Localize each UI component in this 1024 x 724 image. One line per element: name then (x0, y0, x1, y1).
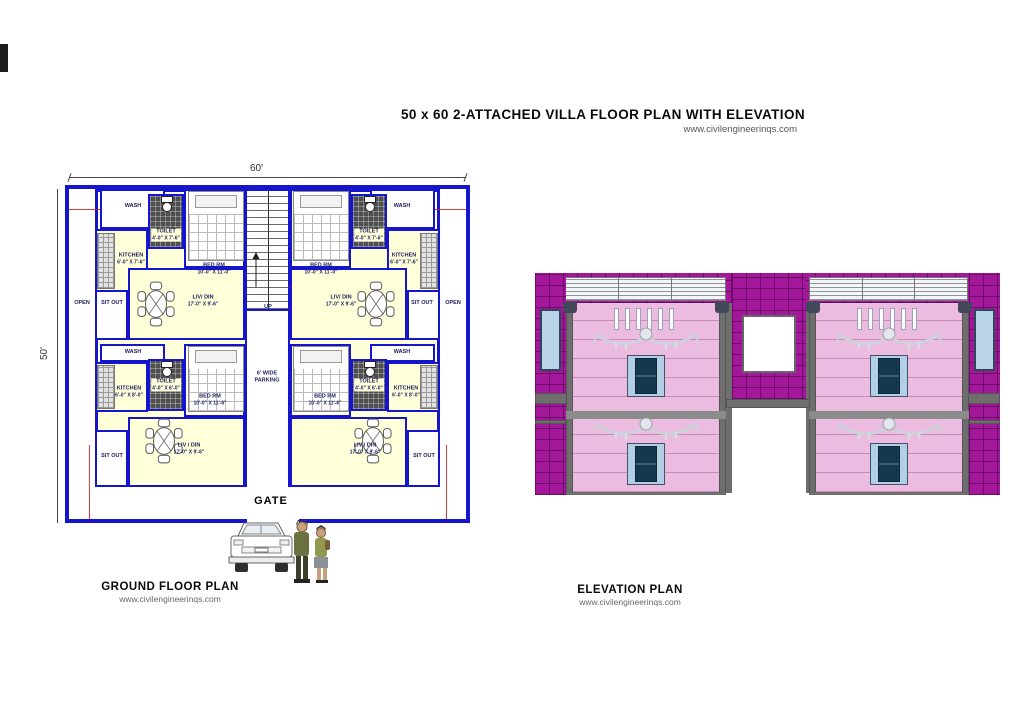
red-property-line (446, 445, 447, 519)
kitchen-counter-upper-left (97, 233, 115, 289)
drawing-sheet: 50 x 60 2-ATTACHED VILLA FLOOR PLAN WITH… (0, 0, 1024, 724)
website-text: www.civilengineerinqs.com (545, 597, 715, 607)
room-label-living: LIV/ DIN17'-0" X 9'-6" (188, 295, 218, 308)
height-dimension: 50' (39, 347, 50, 360)
swag-ornament-icon (588, 327, 704, 355)
bed-icon (293, 191, 349, 261)
swag-ornament-icon (588, 417, 704, 445)
brick-tower-center (732, 273, 806, 399)
room-label-bed: BED RM10'-0" X 11'-0" (305, 263, 338, 276)
car-icon (228, 516, 338, 586)
plan-caption-block: GROUND FLOOR PLAN www.civilengineerinqs.… (85, 581, 255, 604)
brick-column-left (535, 273, 566, 495)
red-property-line (89, 445, 90, 519)
room-label-open: OPEN (445, 300, 461, 307)
parking-driveway (245, 311, 290, 487)
toilet-icon (364, 361, 374, 376)
window (870, 355, 908, 397)
parapet-louver-left (565, 277, 726, 301)
room-label-kitchen: KITCHEN6'-0" X 8'-0" (392, 386, 420, 399)
room-label-bed: BED RM10'-0" X 11'-6" (194, 394, 227, 407)
dining-table-icon (145, 418, 183, 464)
toilet-icon (364, 196, 374, 211)
elevation-caption-block: ELEVATION PLAN www.civilengineerinqs.com (545, 584, 715, 607)
dimension-line-top (69, 177, 466, 178)
plan-caption: GROUND FLOOR PLAN (85, 581, 255, 593)
parking-label: 6' WIDE PARKING (248, 371, 286, 384)
dining-table-icon (357, 281, 395, 327)
room-label-sitout: SIT OUT (411, 300, 433, 307)
room-label-sitout: SIT OUT (101, 453, 123, 460)
edge-artifact (0, 44, 8, 72)
room-label-toilet: TOILET4'-0" X 7'-6" (354, 229, 384, 242)
room-label-sitout: SIT OUT (101, 300, 123, 307)
website-text: www.civilengineerinqs.com (393, 124, 813, 135)
person-man-icon (294, 520, 310, 583)
belt-line-left (535, 420, 566, 424)
bed-icon (188, 191, 244, 261)
brick-column-right (969, 273, 1000, 495)
window (870, 443, 908, 485)
window (627, 355, 665, 397)
window (627, 443, 665, 485)
stairs-up-label: UP (264, 304, 272, 311)
kitchen-counter-upper-right (420, 233, 438, 289)
swag-ornament-icon (831, 327, 947, 355)
room-label-kitchen: KITCHEN6'-0" X 8'-0" (115, 386, 143, 399)
room-label-toilet: TOILET4'-0" X 6'-0" (151, 379, 181, 392)
kitchen-counter-lower-left (97, 365, 115, 409)
room-label-toilet: TOILET4'-0" X 6'-0" (354, 379, 384, 392)
capital-ornament-icon (715, 302, 729, 313)
room-label-living: LIV / DIN17'-0" X 9'-6" (350, 443, 380, 456)
room-label-sitout: SIT OUT (413, 453, 435, 460)
swag-ornament-icon (831, 417, 947, 445)
toilet-icon (161, 361, 171, 376)
room-label-bed: BED RM10'-0" X 11'-0" (198, 263, 231, 276)
room-label-bed: BED RM10'-0" X 11'-6" (309, 394, 342, 407)
center-pilaster-left (726, 303, 732, 493)
room-label-toilet: TOILET4'-0" X 7'-6" (151, 229, 181, 242)
pilaster (566, 303, 573, 492)
room-label-wash: WASH (394, 203, 411, 210)
room-label-kitchen: KITCHEN6'-0" X 7'-6" (117, 253, 145, 266)
pilaster (719, 303, 726, 492)
sitout-upper-left (95, 290, 128, 340)
elevation-drawing (535, 273, 1000, 495)
capital-ornament-icon (806, 302, 820, 313)
capital-ornament-icon (563, 302, 577, 313)
width-dimension: 60' (250, 163, 263, 174)
website-text: www.civilengineerinqs.com (85, 594, 255, 604)
center-band (726, 399, 812, 408)
tower-opening (742, 315, 796, 373)
page-title: 50 x 60 2-ATTACHED VILLA FLOOR PLAN WITH… (393, 107, 813, 122)
capital-ornament-icon (958, 302, 972, 313)
room-label-wash: WASH (125, 349, 142, 356)
red-dim-line (435, 209, 466, 210)
gate-label: GATE (254, 498, 288, 505)
red-dim-line (69, 209, 100, 210)
dining-table-icon (354, 418, 392, 464)
facade-wing-left (566, 303, 726, 495)
parapet-louver-right (809, 277, 968, 301)
glass-panel-right (974, 309, 995, 371)
title-block: 50 x 60 2-ATTACHED VILLA FLOOR PLAN WITH… (393, 107, 813, 135)
room-label-living: LIV/ DIN17'-0" X 9'-6" (326, 295, 356, 308)
stairs-icon (245, 189, 290, 311)
dimension-line-left (57, 189, 58, 523)
room-label-kitchen: KITCHEN6'-0" X 7'-6" (390, 253, 418, 266)
toilet-icon (161, 196, 171, 211)
person-woman-icon (314, 525, 330, 583)
elevation-caption: ELEVATION PLAN (545, 584, 715, 596)
belt-line-right (969, 420, 1000, 424)
pilaster (809, 303, 816, 492)
facade-wing-right (809, 303, 969, 495)
driveway-opening (249, 482, 286, 489)
room-label-living: LIV / DIN17'-0" X 9'-6" (174, 443, 204, 456)
pilaster (962, 303, 969, 492)
kitchen-counter-lower-right (420, 365, 438, 409)
ground-floor-plan: WASH TOILET4'-0" X 7'-6" KITCHEN6'-0" X … (65, 185, 470, 523)
room-label-wash: WASH (125, 203, 142, 210)
dining-table-icon (137, 281, 175, 327)
sitout-upper-right (407, 290, 440, 340)
room-label-wash: WASH (394, 349, 411, 356)
room-label-open: OPEN (74, 300, 90, 307)
glass-panel-left (540, 309, 561, 371)
